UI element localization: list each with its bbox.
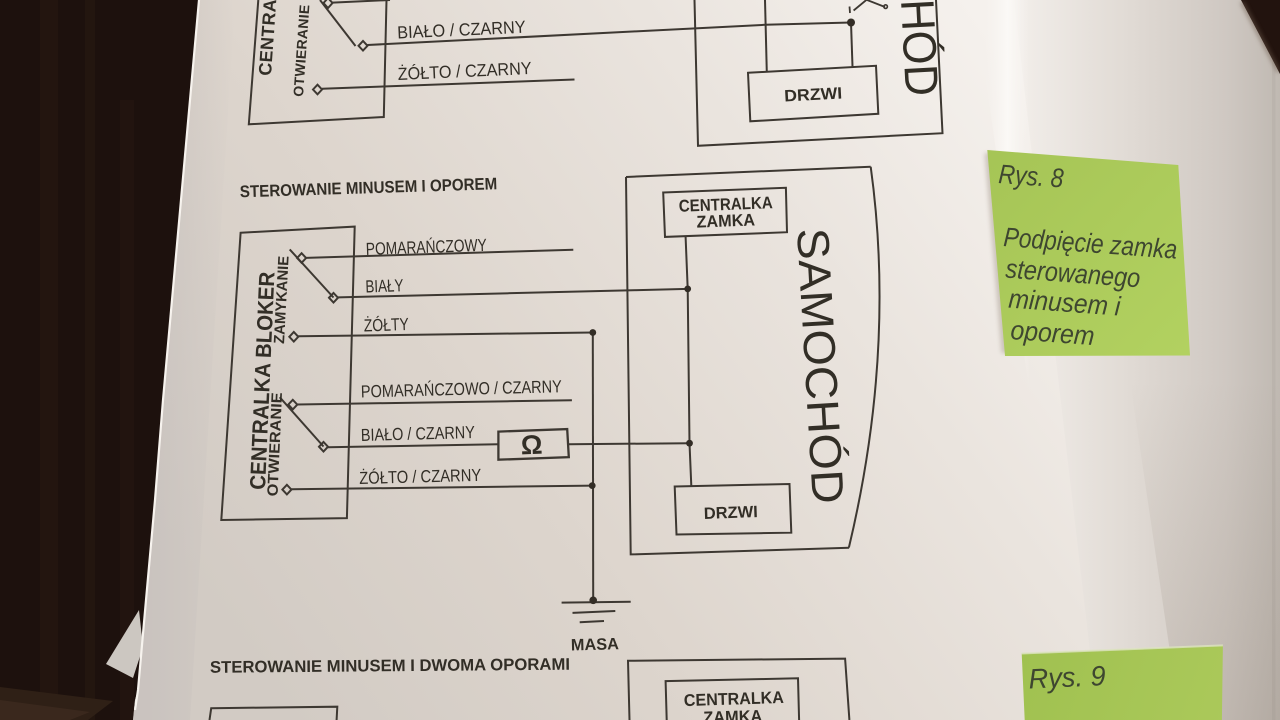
svg-text:BIAŁO / CZARNY: BIAŁO / CZARNY (361, 422, 476, 445)
svg-text:HÓD: HÓD (891, 0, 949, 97)
svg-text:oporem: oporem (1010, 315, 1096, 351)
svg-text:ZAMKA: ZAMKA (703, 707, 763, 720)
svg-text:POMARAŃCZOWY: POMARAŃCZOWY (365, 235, 487, 259)
svg-text:ŻÓŁTY: ŻÓŁTY (363, 313, 409, 336)
svg-text:MASA: MASA (571, 635, 620, 654)
svg-text:Rys. 8: Rys. 8 (998, 159, 1065, 193)
svg-text:STEROWANIE MINUSEM I DWOMA OPO: STEROWANIE MINUSEM I DWOMA OPORAMI (210, 655, 570, 677)
svg-text:ZAMKA: ZAMKA (696, 210, 755, 231)
svg-text:DRZWI: DRZWI (704, 503, 759, 523)
svg-text:BIAŁY: BIAŁY (365, 275, 404, 296)
svg-text:ŻÓŁTO / CZARNY: ŻÓŁTO / CZARNY (359, 464, 482, 488)
svg-text:Rys. 9: Rys. 9 (1028, 660, 1106, 694)
svg-text:DRZWI: DRZWI (784, 85, 843, 106)
svg-text:Ω: Ω (520, 430, 543, 461)
